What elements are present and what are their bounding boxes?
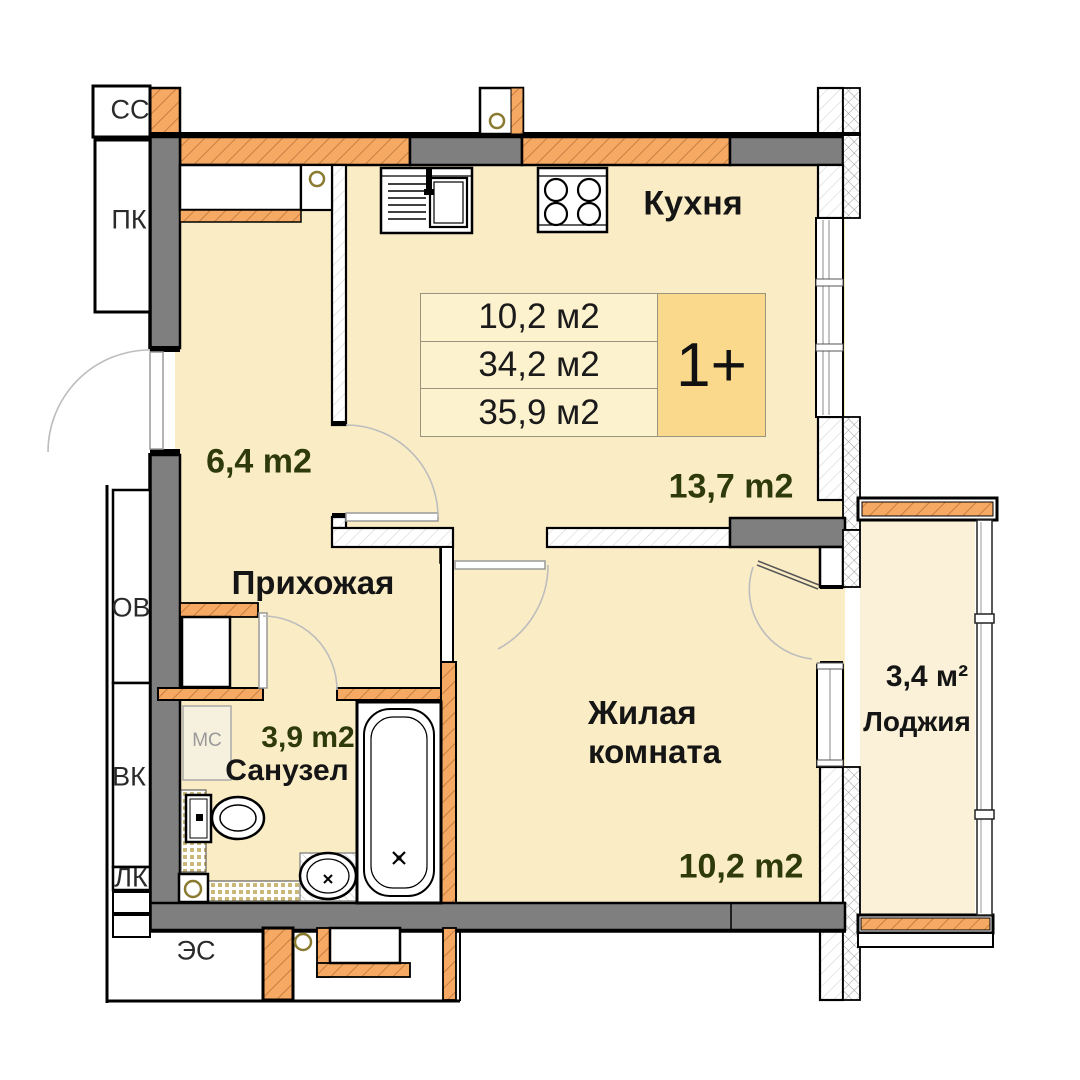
room-label-kitchen: Кухня [643,185,742,224]
shaft-label-pk: ПК [111,205,146,236]
room-area-living-room: 10,2 m2 [679,848,804,887]
shaft-label-vk: ВК [112,762,146,793]
kitchen-sink [381,168,472,233]
room-area-loggia: 3,4 м² [886,660,968,694]
shaft-label-lk: ЛК [114,863,147,894]
shaft-label-es: ЭС [177,936,216,967]
entrance-door [48,346,180,455]
area-row-2: 34,2 м2 [421,342,657,390]
area-row-3: 35,9 м2 [421,389,657,436]
room-area-hallway: 6,4 m2 [206,443,312,482]
loggia-glazing [975,520,994,915]
stove [538,168,607,232]
area-info-table: 10,2 м2 34,2 м2 35,9 м2 1+ [420,293,766,437]
room-label-hallway: Прихожая [232,564,395,602]
room-label-bathroom: Санузел [225,754,348,788]
floor-plan: Кухня 13,7 m2 6,4 m2 Прихожая 3,9 m2 Сан… [0,0,1080,1080]
room-label-living-room: Жилая комната [588,694,766,772]
toilet [186,795,264,842]
area-info-rows: 10,2 м2 34,2 м2 35,9 м2 [421,294,657,436]
shaft-label-ss: СС [111,95,150,126]
kitchen-window [816,218,843,417]
floor-plan-drawing [0,0,1080,1080]
bottom-structures [263,928,456,1000]
washing-machine-label: МС [192,730,222,752]
washbasin [300,853,357,901]
bathtub [357,702,441,903]
room-area-kitchen: 13,7 m2 [669,468,794,507]
vent-shaft [480,88,523,134]
living-room-window [817,663,843,767]
shaft-label-ov: ОВ [111,593,150,624]
apartment-type-badge: 1+ [657,294,765,436]
room-area-bathroom: 3,9 m2 [261,721,354,755]
room-label-loggia: Лоджия [863,706,971,738]
area-row-1: 10,2 м2 [421,294,657,342]
